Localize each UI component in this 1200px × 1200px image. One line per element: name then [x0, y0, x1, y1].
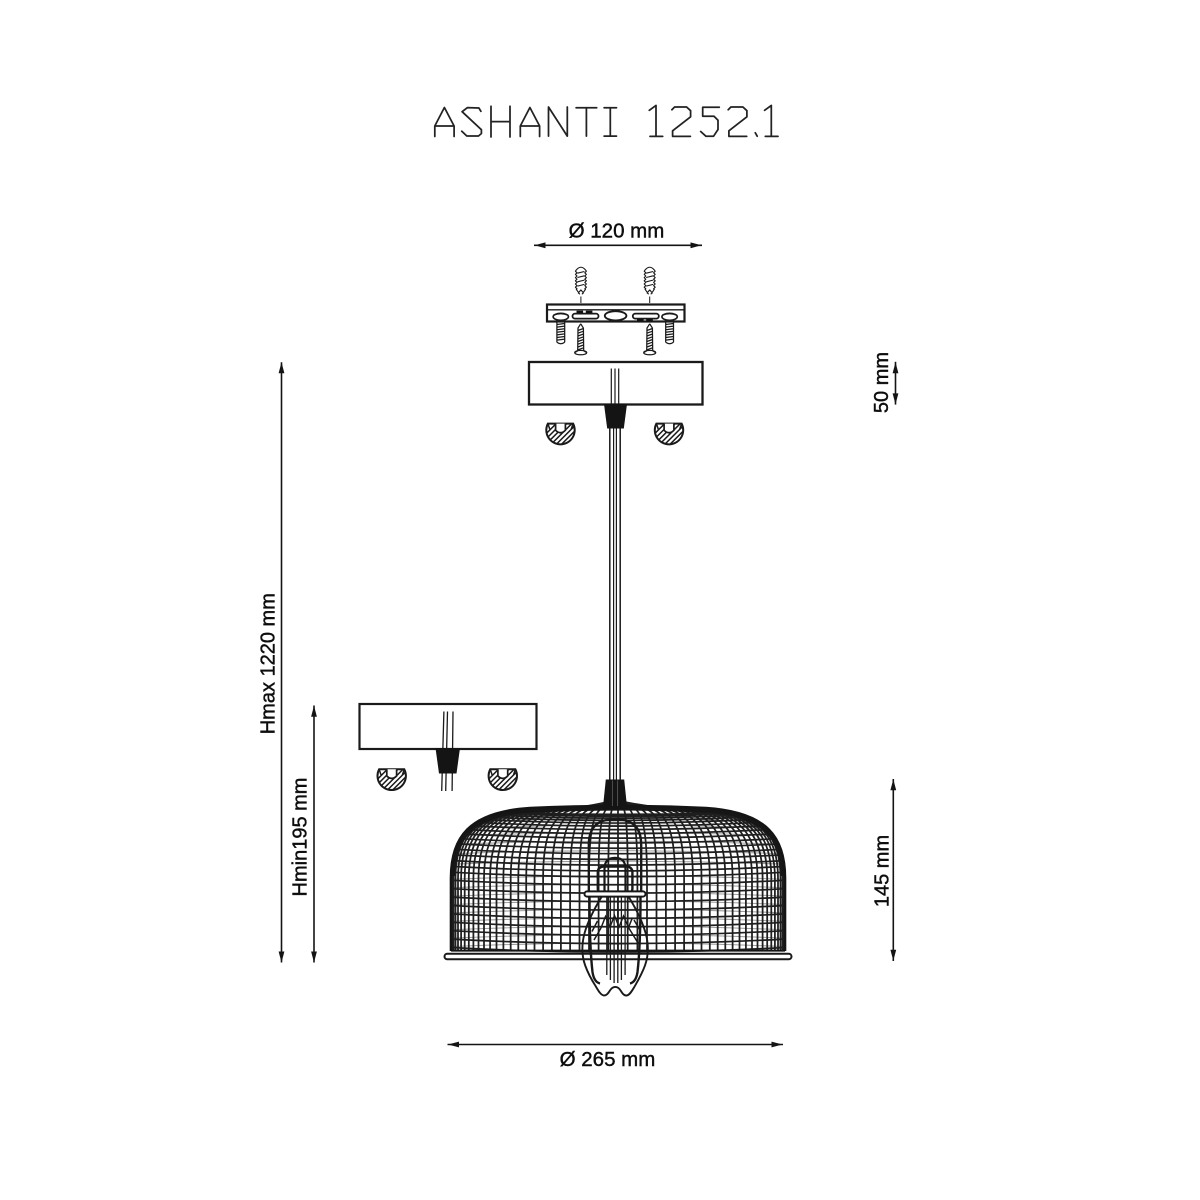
svg-text:Ø 120 mm: Ø 120 mm — [569, 220, 665, 243]
svg-text:Hmax 1220 mm: Hmax 1220 mm — [258, 593, 280, 734]
svg-text:Hmin195 mm: Hmin195 mm — [289, 778, 311, 897]
svg-text:50 mm: 50 mm — [871, 352, 893, 413]
svg-text:145 mm: 145 mm — [872, 835, 894, 907]
svg-text:Ø 265 mm: Ø 265 mm — [560, 1048, 656, 1071]
